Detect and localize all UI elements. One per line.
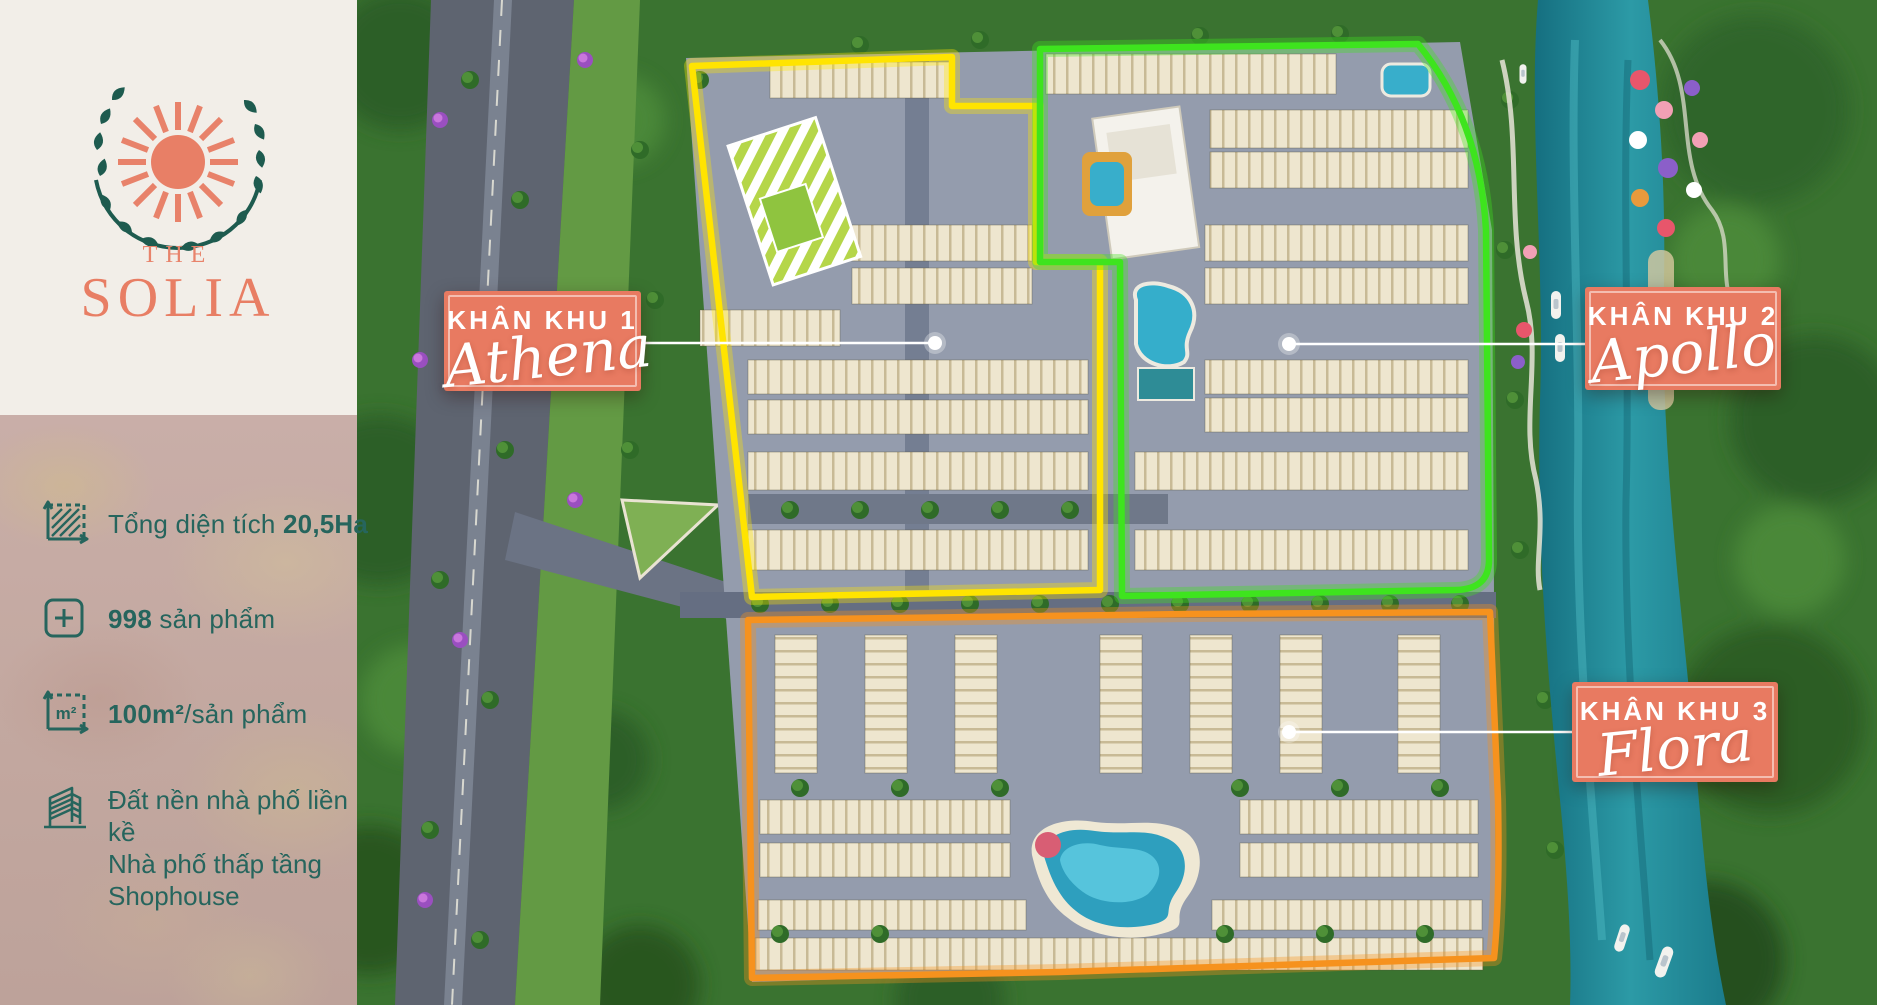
m2-icon-label: m² bbox=[56, 704, 77, 723]
stat-size-value: 100m² bbox=[108, 699, 184, 729]
stat-product-types: Đất nền nhà phố liền kề Nhà phố thấp tần… bbox=[36, 782, 357, 912]
zone3-name: Flora bbox=[1570, 712, 1780, 783]
zone3-label[interactable]: KHÂN KHU 3 Flora bbox=[1572, 682, 1778, 782]
area-hatch-icon bbox=[36, 495, 92, 551]
product-type-line3: Shophouse bbox=[108, 880, 357, 912]
product-type-line2: Nhà phố thấp tầng bbox=[108, 848, 357, 880]
tennis-court bbox=[1138, 368, 1194, 400]
stat-unit-size: m² 100m²/sản phẩm bbox=[36, 687, 357, 741]
solia-logo: THE SOLIA bbox=[0, 0, 357, 360]
zone2-label[interactable]: KHÂN KHU 2 Apollo bbox=[1585, 287, 1781, 390]
plus-square-icon bbox=[36, 590, 92, 646]
info-sidebar: THE SOLIA Tổng diện tích 20,5Ha bbox=[0, 0, 357, 1005]
stat-units: 998 sản phẩm bbox=[36, 592, 357, 646]
stat-total-area: Tổng diện tích 20,5Ha bbox=[36, 497, 357, 551]
stat-size-suffix: /sản phẩm bbox=[184, 699, 307, 729]
brand-word-the: THE bbox=[143, 242, 214, 268]
sun-core bbox=[151, 135, 205, 189]
brand-panel: THE SOLIA bbox=[0, 0, 357, 415]
building-icon bbox=[36, 780, 92, 836]
stat-area-prefix: Tổng diện tích bbox=[108, 509, 283, 539]
mini-pool bbox=[1382, 64, 1430, 96]
clubhouse-pool-deck bbox=[1082, 152, 1132, 216]
zone2-name: Apollo bbox=[1583, 318, 1783, 388]
zone1-name: Athena bbox=[442, 322, 643, 392]
stat-units-value: 998 bbox=[108, 604, 152, 634]
m2-square-icon: m² bbox=[36, 685, 92, 741]
kidney-pool bbox=[1135, 283, 1194, 366]
product-type-line1: Đất nền nhà phố liền kề bbox=[108, 784, 357, 848]
masterplan-aerial-map bbox=[357, 0, 1877, 1005]
zone1-label[interactable]: KHÂN KHU 1 Athena bbox=[444, 291, 641, 391]
stat-units-suffix: sản phẩm bbox=[152, 604, 275, 634]
boulevard-road bbox=[395, 0, 640, 1005]
stat-area-value: 20,5Ha bbox=[283, 509, 368, 539]
stats-panel: Tổng diện tích 20,5Ha 998 sản phẩm m² 10… bbox=[0, 415, 357, 1005]
brand-word-solia: SOLIA bbox=[81, 267, 276, 329]
